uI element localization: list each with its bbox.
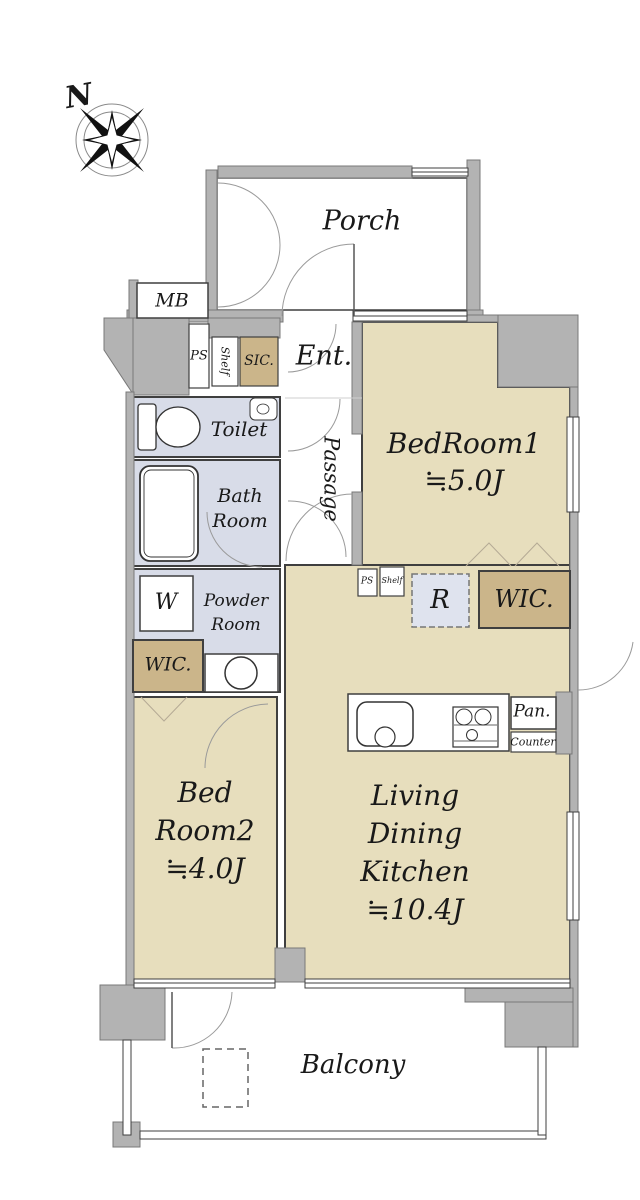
- sic-label: SIC.: [244, 354, 274, 368]
- bathroom-label: Bath Room: [212, 484, 267, 534]
- shelf-top-label: Shelf: [220, 347, 231, 376]
- floor-plan: N Porch MB PS Shelf SIC. Ent. Passage To…: [0, 0, 640, 1200]
- bedroom2-area: ≒4.0J: [155, 850, 254, 888]
- wall-pillar: [505, 1002, 573, 1047]
- wall-pillar: [100, 985, 165, 1040]
- wall: [133, 318, 189, 395]
- porch-floor: [217, 178, 467, 310]
- toilet-label: Toilet: [211, 419, 268, 439]
- toilet-tank-icon: [138, 404, 156, 450]
- pantry-label: Pan.: [513, 704, 550, 721]
- wic-left-label: WIC.: [145, 656, 192, 675]
- wall: [556, 692, 572, 754]
- wall: [352, 492, 362, 565]
- bathtub-icon: [140, 466, 198, 561]
- bedroom1-name: BedRoom1: [387, 425, 541, 462]
- wall: [570, 387, 578, 417]
- ps-mid-label: PS: [361, 578, 373, 587]
- bedroom1-area: ≒5.0J: [387, 462, 541, 499]
- counter-label: Counter: [510, 737, 555, 748]
- door-arc: [578, 642, 633, 690]
- bedroom2-label: Bed Room2 ≒4.0J: [155, 774, 254, 888]
- balcony-railing: [123, 1040, 131, 1135]
- wall: [465, 988, 573, 1002]
- ps-top-label: PS: [190, 350, 208, 363]
- ldk-area: ≒10.4J: [360, 891, 469, 929]
- balcony-railing: [538, 1047, 546, 1135]
- wall-chamfer: [104, 318, 133, 394]
- mb-label: MB: [155, 292, 188, 311]
- shelf-mid-label: Shelf: [382, 577, 403, 585]
- toilet-bowl-icon: [156, 407, 200, 447]
- wall: [208, 318, 280, 338]
- compass-icon: [76, 104, 148, 176]
- wall: [218, 166, 412, 178]
- balcony-label: Balcony: [301, 1052, 406, 1078]
- wall: [467, 160, 480, 318]
- wall-pillar: [498, 315, 578, 387]
- balcony-railing: [140, 1131, 546, 1139]
- vanity-sink-icon: [225, 657, 257, 689]
- fridge-label: R: [430, 587, 450, 613]
- faucet-icon: [375, 727, 395, 747]
- porch-label: Porch: [323, 208, 402, 235]
- ldk-label: Living Dining Kitchen ≒10.4J: [360, 777, 469, 929]
- ent-label: Ent.: [296, 343, 353, 370]
- wall-pillar: [275, 948, 305, 982]
- wall: [570, 512, 578, 812]
- compass-north-label: N: [63, 80, 95, 114]
- wic-right-label: WIC.: [494, 587, 553, 611]
- washer-label: W: [155, 592, 178, 614]
- powder-room-label: Powder Room: [204, 589, 269, 637]
- bedroom1-label: BedRoom1 ≒5.0J: [387, 425, 541, 499]
- wall: [352, 322, 362, 434]
- passage-label: Passage: [321, 436, 342, 522]
